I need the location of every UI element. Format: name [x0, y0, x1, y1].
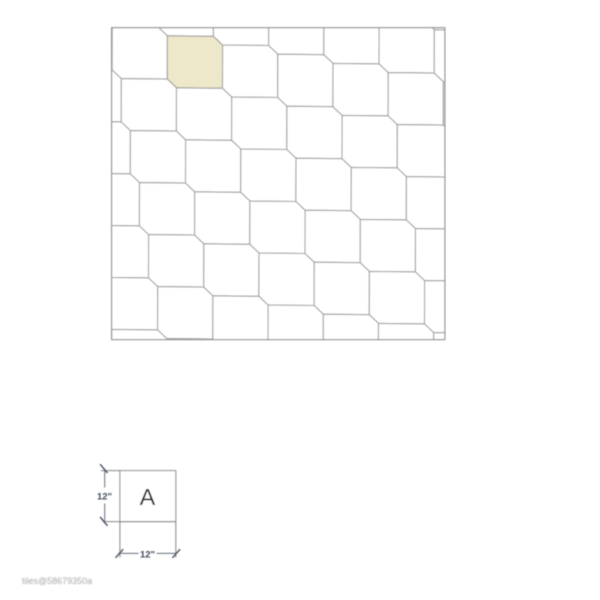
- svg-text:12": 12": [140, 550, 155, 561]
- svg-text:12": 12": [97, 492, 112, 503]
- svg-text:tiles@58679350a: tiles@58679350a: [22, 576, 92, 586]
- svg-text:A: A: [140, 484, 156, 510]
